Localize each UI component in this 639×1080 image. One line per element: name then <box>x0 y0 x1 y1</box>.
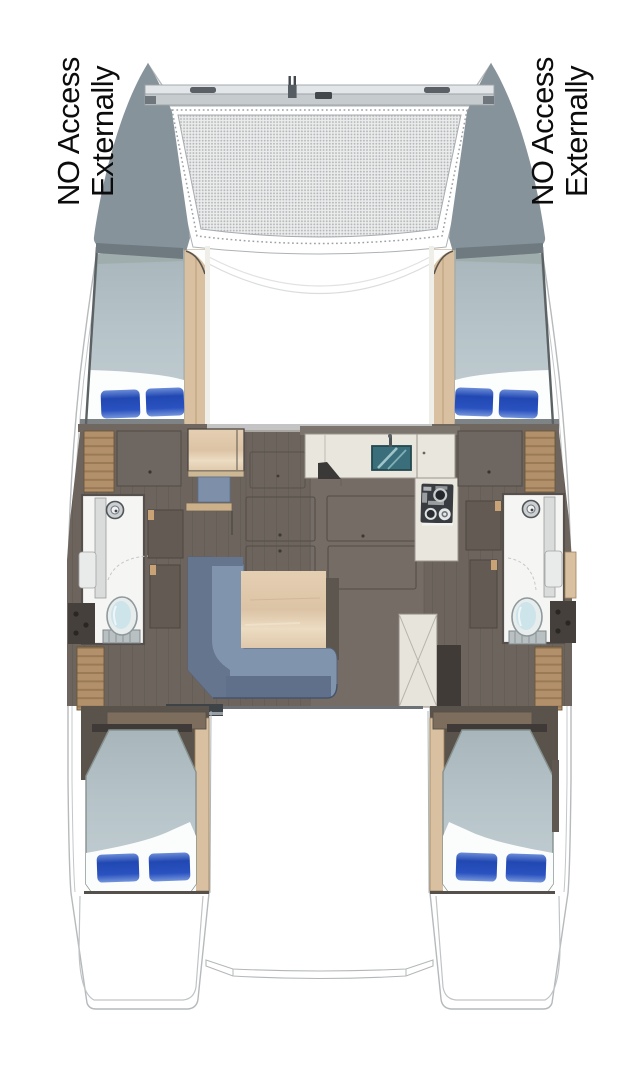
svg-text:NO Access: NO Access <box>51 57 86 206</box>
svg-text:Externally: Externally <box>85 65 120 197</box>
svg-text:Externally: Externally <box>559 65 594 197</box>
svg-text:NO Access: NO Access <box>525 57 560 206</box>
